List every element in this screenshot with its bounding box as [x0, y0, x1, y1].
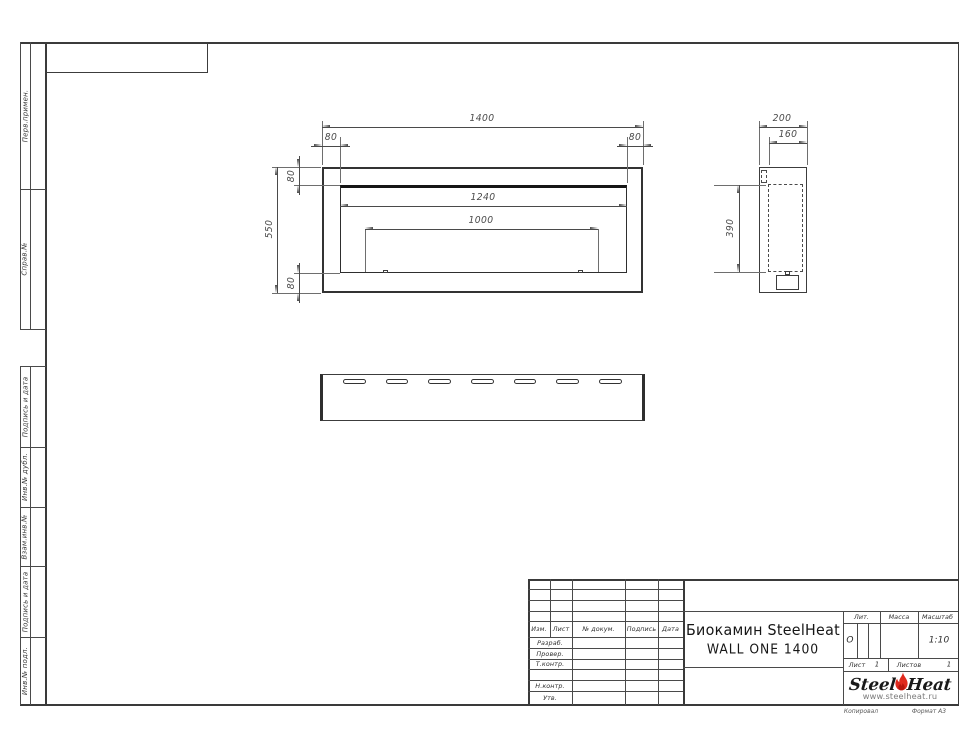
- titleblock-line: [683, 579, 685, 705]
- margin-label-inv-dubl: Инв.№ дубл.: [19, 447, 31, 507]
- dim-arrow: [322, 125, 330, 127]
- scale-value: 1:10: [929, 636, 950, 645]
- dim-text-total-width: 1400: [470, 114, 495, 124]
- margin-cell-line: [20, 329, 46, 330]
- footer-kopiroval: Копировал: [844, 708, 878, 715]
- burner-slot: [428, 379, 451, 384]
- titleblock-line: [658, 579, 659, 705]
- col-data: Дата: [662, 626, 679, 632]
- logo-text-steel: Steel: [848, 677, 897, 694]
- titleblock-line: [918, 611, 919, 658]
- dim-line-1000: [365, 229, 598, 230]
- burner-slot: [556, 379, 579, 384]
- dim-arrow: [275, 167, 277, 175]
- side-view-hidden-cavity: [768, 184, 803, 272]
- dim-arrow: [737, 264, 739, 272]
- dim-text-offset-right: 80: [629, 133, 641, 143]
- dim-arrow: [799, 125, 807, 127]
- frame-right-border: [958, 42, 960, 705]
- dim-text-offset-top: 80: [287, 170, 297, 182]
- titleblock-left-border: [528, 579, 530, 705]
- dim-arrow: [275, 285, 277, 293]
- lit-label: Лит.: [854, 614, 869, 620]
- titleblock-line: [528, 691, 683, 692]
- ext-line: [294, 273, 340, 274]
- dim-arrow: [590, 227, 598, 229]
- scale-label: Масштаб: [922, 614, 953, 620]
- titleblock-line: [528, 589, 683, 590]
- front-burner-mark-left: [383, 270, 388, 274]
- titleblock-line: [625, 579, 626, 705]
- mass-label: Масса: [889, 614, 910, 620]
- frame-left-border: [45, 42, 47, 705]
- titleblock-line: [843, 623, 958, 624]
- sheets-label: Листов: [897, 661, 921, 667]
- dim-arrow: [314, 144, 322, 146]
- dim-text-offset-bottom: 80: [287, 277, 297, 289]
- dim-text-inner-height: 390: [726, 219, 736, 238]
- dim-arrow: [340, 144, 348, 146]
- dim-line-1400: [322, 127, 644, 128]
- dim-text-depth: 200: [773, 114, 792, 124]
- titleblock-line: [880, 611, 881, 658]
- footer-format: Формат А3: [912, 708, 946, 715]
- sheets-value: 1: [947, 661, 952, 668]
- ext-line: [294, 185, 340, 186]
- titleblock-line: [868, 623, 869, 658]
- margin-label-perv-primen: Перв.примен.: [19, 43, 31, 189]
- side-view-bracket-hidden: [761, 170, 768, 183]
- dim-arrow: [769, 141, 777, 143]
- burner-slot: [599, 379, 622, 384]
- titleblock-line: [528, 669, 683, 670]
- ext-line: [272, 167, 321, 168]
- corner-stamp-box: [45, 42, 208, 73]
- dim-arrow: [297, 159, 299, 167]
- lit-value: О: [846, 636, 853, 645]
- row-nkontr: Н.контр.: [535, 682, 564, 688]
- burner-slot: [514, 379, 537, 384]
- dim-arrow: [635, 125, 643, 127]
- steelheat-logo: Steel Heat www.steelheat.ru: [843, 671, 957, 704]
- titleblock-line: [528, 600, 683, 601]
- titleblock-line: [683, 667, 843, 668]
- dim-arrow: [759, 125, 767, 127]
- margin-label-vzam-inv: Взам.инв.№: [19, 507, 31, 566]
- burner-slot: [386, 379, 409, 384]
- ext-line: [714, 185, 766, 186]
- dim-text-opening-width: 1240: [471, 193, 496, 203]
- dim-arrow: [737, 185, 739, 193]
- dim-line-550: [277, 167, 278, 293]
- doc-title-line2: WALL ONE 1400: [707, 643, 819, 658]
- ext-line: [598, 229, 599, 272]
- dim-arrow: [340, 204, 348, 206]
- ext-line: [643, 121, 644, 165]
- titleblock-line: [888, 658, 889, 671]
- dim-line-1240: [340, 206, 627, 207]
- dim-arrow: [297, 185, 299, 193]
- dim-arrow: [365, 227, 373, 229]
- dim-arrow: [643, 144, 651, 146]
- burner-slot: [471, 379, 494, 384]
- ext-line: [714, 272, 766, 273]
- dim-text-total-height: 550: [265, 220, 275, 239]
- front-burner-mark-right: [578, 270, 583, 274]
- ext-line: [627, 137, 628, 183]
- dim-arrow: [619, 144, 627, 146]
- drawing-sheet: Перв.примен. Справ.№ Подпись и дата Инв.…: [0, 0, 970, 749]
- titleblock-line: [857, 623, 858, 658]
- sheet-value: 1: [875, 661, 880, 668]
- col-izm: Изм.: [531, 626, 546, 632]
- col-podpis: Подпись: [627, 626, 656, 632]
- dim-text-inner-depth: 160: [779, 130, 798, 140]
- titleblock-line: [572, 579, 573, 705]
- margin-label-sprav-no: Справ.№: [19, 189, 31, 329]
- titleblock-line: [528, 621, 683, 622]
- dim-text-offset-left: 80: [325, 133, 337, 143]
- frame-bottom-border: [20, 704, 959, 706]
- dim-arrow: [619, 204, 627, 206]
- side-view-burner-block: [776, 275, 799, 290]
- titleblock-line: [843, 658, 958, 659]
- sheet-label: Лист: [849, 661, 866, 667]
- titleblock-top-border: [528, 579, 958, 581]
- col-dokum: № докум.: [582, 626, 614, 632]
- dim-arrow: [297, 293, 299, 301]
- side-view-burner-nozzle: [785, 271, 791, 275]
- dim-line-390: [739, 185, 740, 273]
- dim-text-burner-width: 1000: [469, 216, 494, 226]
- row-prover: Провер.: [536, 651, 563, 657]
- row-utv: Утв.: [543, 694, 557, 700]
- logo-text-heat: Heat: [906, 677, 952, 694]
- ext-line: [365, 229, 366, 272]
- margin-label-podpis-data-1: Подпись и дата: [19, 366, 31, 447]
- doc-title-line1: Биокамин SteelHeat: [686, 621, 840, 639]
- dim-arrow: [297, 265, 299, 273]
- margin-label-inv-podl: Инв.№ подл.: [19, 637, 31, 705]
- col-list: Лист: [553, 626, 570, 632]
- dim-arrow: [799, 141, 807, 143]
- burner-slot: [343, 379, 366, 384]
- row-razrab: Разраб.: [537, 639, 563, 645]
- margin-label-podpis-data-2: Подпись и дата: [19, 566, 31, 637]
- titleblock-line: [550, 579, 551, 637]
- row-tkontr: Т.контр.: [536, 661, 565, 667]
- ext-line: [807, 121, 808, 165]
- titleblock-line: [528, 611, 958, 612]
